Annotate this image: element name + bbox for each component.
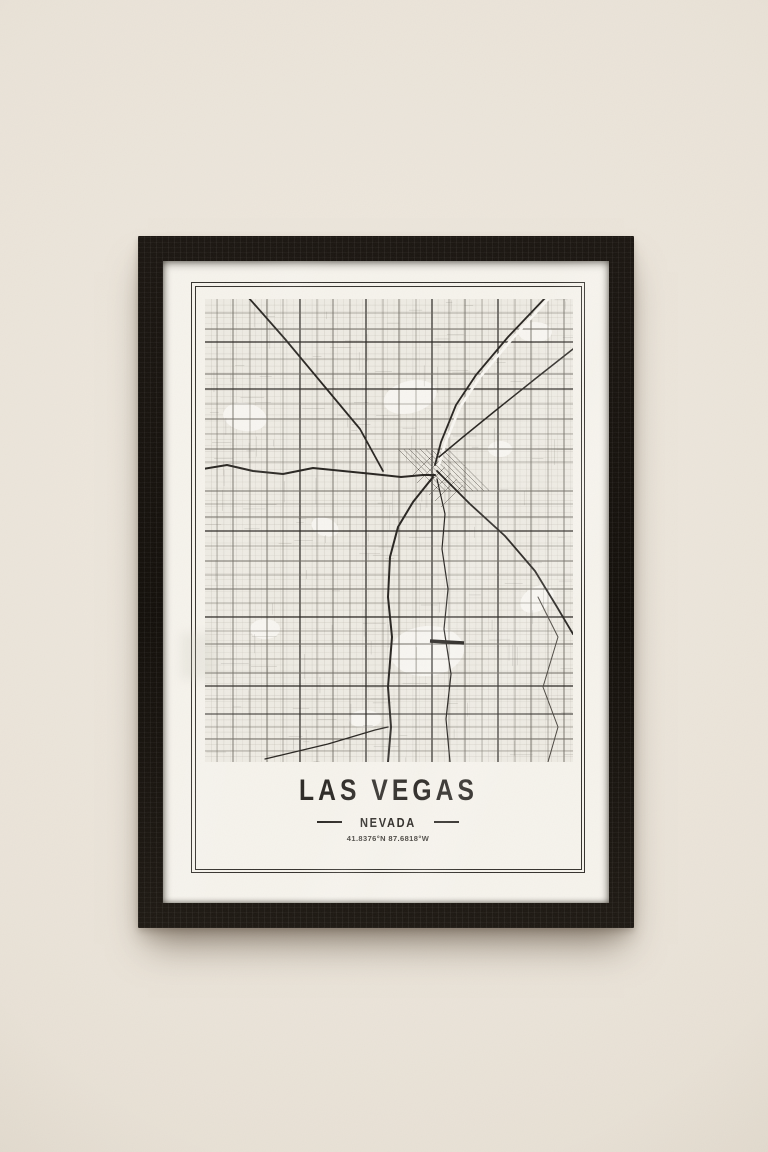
poster-border-outer: LAS VEGAS NEVADA 41.8376°N 87.6818°W	[191, 282, 585, 873]
poster-title: LAS VEGAS	[230, 779, 546, 803]
poster-border-inner: LAS VEGAS NEVADA 41.8376°N 87.6818°W	[195, 286, 582, 870]
poster-subtitle-row: NEVADA	[196, 815, 581, 830]
subtitle-left-dash	[317, 821, 342, 823]
mat-board: LAS VEGAS NEVADA 41.8376°N 87.6818°W	[163, 261, 609, 903]
wall: { "poster": { "title": "LAS VEGAS", "sub…	[0, 0, 768, 1152]
street-map	[205, 299, 573, 762]
poster-frame: LAS VEGAS NEVADA 41.8376°N 87.6818°W	[138, 236, 634, 928]
subtitle-right-dash	[434, 821, 459, 823]
map-poster: LAS VEGAS NEVADA 41.8376°N 87.6818°W	[163, 261, 609, 903]
poster-subtitle: NEVADA	[360, 815, 416, 830]
poster-coordinates: 41.8376°N 87.6818°W	[196, 834, 581, 843]
